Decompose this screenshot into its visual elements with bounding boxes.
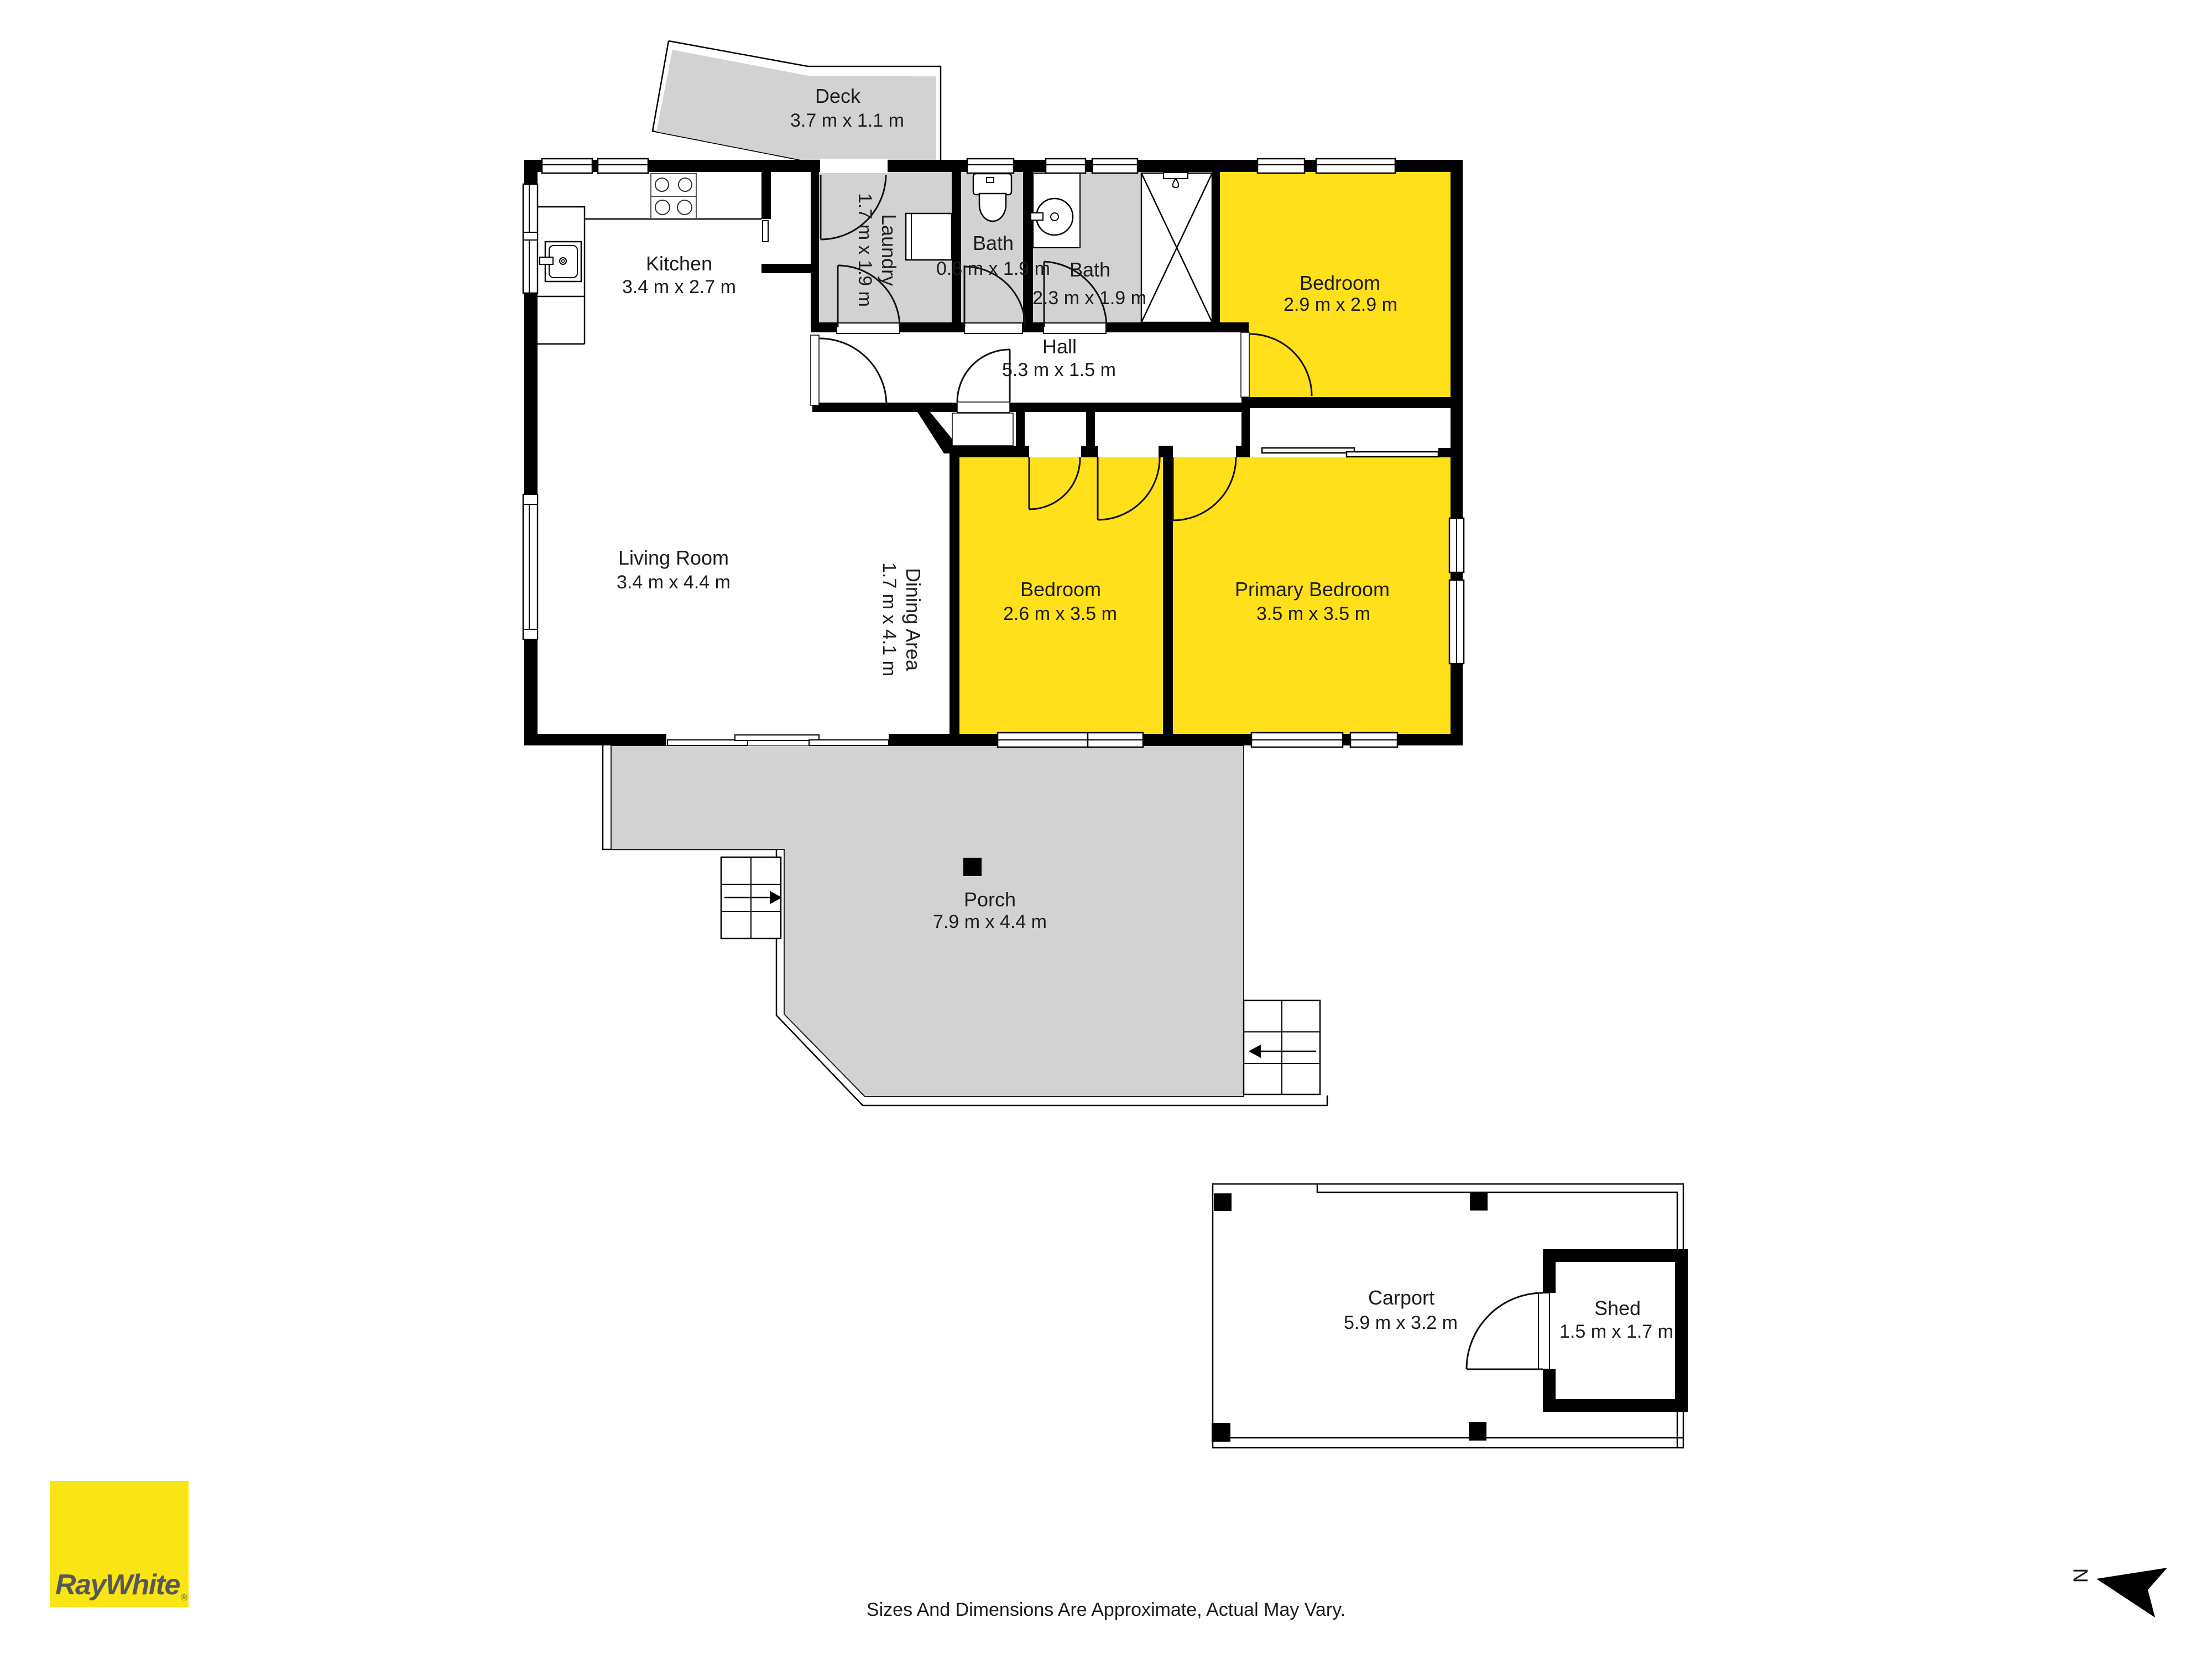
svg-text:Bedroom: Bedroom [1020,578,1101,601]
svg-text:Kitchen: Kitchen [646,252,712,275]
svg-text:RayWhite: RayWhite [55,1569,180,1601]
svg-text:2.6 m x 3.5 m: 2.6 m x 3.5 m [1003,603,1117,624]
svg-text:2.9 m x 2.9 m: 2.9 m x 2.9 m [1284,294,1397,315]
svg-text:®: ® [181,1593,187,1603]
svg-text:Bath: Bath [973,232,1014,254]
svg-text:Sizes And Dimensions Are Appro: Sizes And Dimensions Are Approximate, Ac… [867,1599,1345,1620]
svg-text:Laundry: Laundry [878,214,900,286]
svg-text:3.4 m x 2.7 m: 3.4 m x 2.7 m [622,276,736,298]
svg-text:Deck: Deck [815,85,861,107]
svg-text:2.3 m x 1.9 m: 2.3 m x 1.9 m [1032,288,1146,309]
svg-text:Shed: Shed [1594,1297,1641,1319]
svg-text:5.3 m x 1.5 m: 5.3 m x 1.5 m [1002,359,1116,380]
svg-text:Porch: Porch [964,888,1016,911]
svg-text:1.5 m x 1.7 m: 1.5 m x 1.7 m [1559,1321,1673,1342]
svg-text:0.8 m x 1.9 m: 0.8 m x 1.9 m [936,258,1050,279]
svg-text:Living Room: Living Room [618,546,729,569]
svg-text:Dining Area: Dining Area [902,568,925,671]
svg-text:3.5 m x 3.5 m: 3.5 m x 3.5 m [1256,603,1370,624]
svg-text:Bath: Bath [1070,258,1110,281]
svg-text:Bedroom: Bedroom [1300,272,1380,294]
svg-text:Carport: Carport [1368,1286,1434,1309]
svg-text:1.7 m x 4.1 m: 1.7 m x 4.1 m [879,562,900,676]
svg-text:Primary Bedroom: Primary Bedroom [1235,578,1390,601]
svg-text:5.9 m x 3.2 m: 5.9 m x 3.2 m [1344,1312,1458,1333]
svg-text:N: N [2069,1568,2092,1583]
svg-text:3.7 m x 1.1 m: 3.7 m x 1.1 m [790,110,904,131]
svg-text:7.9 m x 4.4 m: 7.9 m x 4.4 m [933,911,1047,932]
svg-text:Hall: Hall [1042,335,1077,358]
svg-text:3.4 m x 4.4 m: 3.4 m x 4.4 m [617,572,731,593]
svg-text:1.7 m x 1.9 m: 1.7 m x 1.9 m [854,193,875,307]
